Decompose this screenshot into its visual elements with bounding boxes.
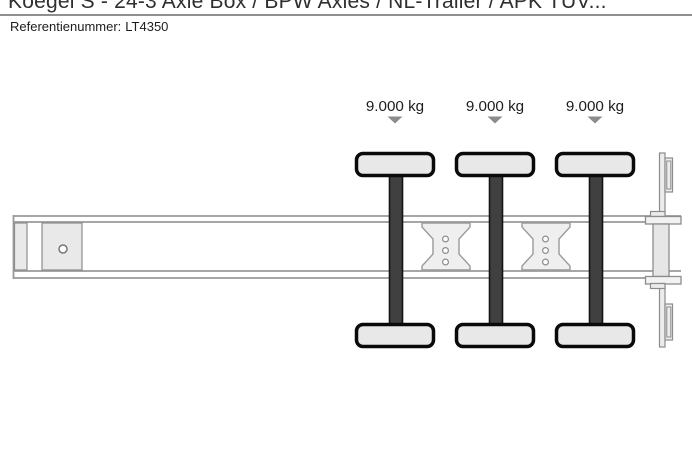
axle-bars — [390, 165, 603, 334]
arrow-down-icon — [488, 117, 503, 124]
rear-plate-foot-bottom — [651, 284, 666, 289]
rear-lamp-plate-bottom — [660, 284, 666, 348]
axle-load-labels: 9.000 kg 9.000 kg 9.000 kg — [366, 98, 624, 124]
axle-load-label-3: 9.000 kg — [566, 98, 624, 115]
axle-load-label-2: 9.000 kg — [466, 98, 524, 115]
axle-bar-1 — [390, 165, 403, 334]
wheel-axle1-bottom — [357, 325, 434, 347]
rear-crossbar-bottom — [646, 277, 682, 285]
rear-lamp-bottom — [665, 304, 673, 340]
axle-load-label-1: 9.000 kg — [366, 98, 424, 115]
front-bulkhead-strip — [15, 223, 28, 270]
kingpin — [59, 245, 67, 253]
arrow-down-icon — [388, 117, 403, 124]
front-section — [15, 223, 83, 270]
chassis-frame — [13, 215, 681, 279]
rear-lamp-plate-top — [660, 153, 666, 217]
trailer-axle-diagram: 9.000 kg 9.000 kg 9.000 kg — [0, 0, 692, 460]
wheel-axle1-top — [357, 154, 434, 176]
axle-bar-2 — [490, 165, 503, 334]
wheel-axle2-bottom — [457, 325, 534, 347]
arrow-down-icon — [588, 117, 603, 124]
rear-lamp-top — [665, 158, 673, 192]
axle-load-arrows — [388, 117, 603, 124]
rear-crossbar-top — [646, 217, 682, 225]
wheel-axle2-top — [457, 154, 534, 176]
rear-plate-foot-top — [651, 212, 666, 217]
wheel-axle3-top — [557, 154, 634, 176]
rear-bumper-post — [653, 224, 669, 277]
wheel-axle3-bottom — [557, 325, 634, 347]
rear-section — [646, 153, 682, 347]
axle-bar-3 — [590, 165, 603, 334]
trailer-listing-page: Koegel S - 24-3 Axle Box / BPW Axles / N… — [0, 0, 692, 460]
